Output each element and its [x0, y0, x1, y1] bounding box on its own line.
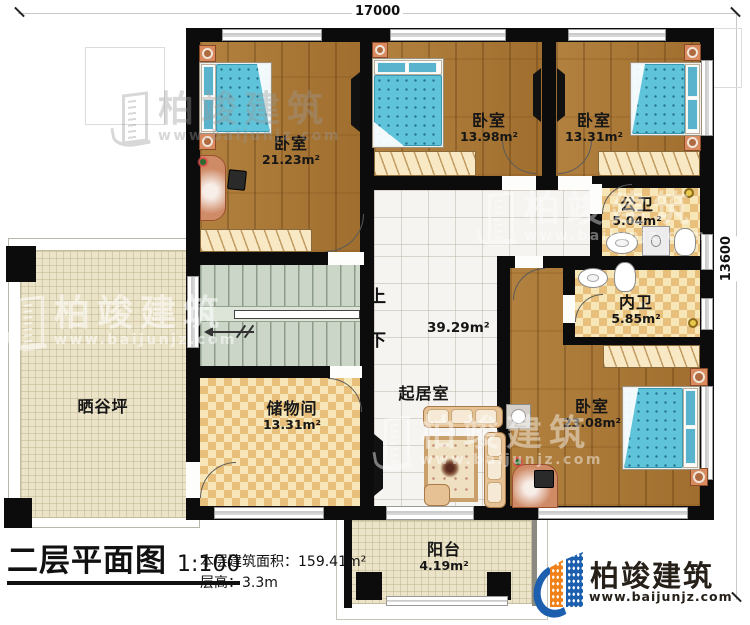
sofa-cushion — [487, 436, 502, 457]
sofa-cushion — [475, 409, 497, 424]
window — [222, 29, 322, 41]
room-name: 公卫 — [612, 196, 661, 214]
tv-icon — [533, 68, 541, 122]
nightstand — [372, 42, 388, 58]
door-opening — [563, 295, 575, 323]
nightstand — [199, 45, 216, 62]
stairs-railing — [234, 310, 360, 319]
sofa-cushion — [427, 409, 449, 424]
room-area: 13.31m² — [263, 418, 321, 432]
wall — [563, 337, 714, 345]
nightstand — [684, 134, 701, 151]
window — [701, 60, 713, 136]
roof-outline-hint — [712, 28, 742, 88]
roof-outline-hint — [85, 47, 165, 125]
logo-orange-tower — [550, 560, 563, 607]
nightstand — [690, 468, 708, 486]
tv-icon — [557, 68, 565, 122]
door-opening — [515, 256, 543, 268]
window — [701, 298, 713, 330]
tv-icon — [351, 72, 360, 132]
bed-pillow — [408, 62, 437, 73]
window — [538, 507, 688, 519]
nightstand — [199, 133, 216, 150]
brand-url: www.baijunjz.com — [589, 589, 733, 604]
hallway-floor — [374, 190, 590, 256]
room-label-bedroom-bottom-right: 卧室 23.08m² — [563, 398, 621, 430]
computer-icon — [534, 470, 554, 488]
plan-title: 二层平面图 — [7, 546, 167, 577]
door-opening — [502, 176, 536, 190]
room-label-storage: 储物间 13.31m² — [263, 400, 321, 432]
floor-height-value: 3.3m — [242, 575, 278, 591]
wardrobe — [374, 151, 476, 176]
plant-icon — [197, 156, 209, 168]
window — [187, 276, 199, 348]
room-name: 内卫 — [611, 294, 660, 312]
column — [6, 246, 36, 282]
room-name: 阳台 — [419, 541, 468, 559]
sink-icon — [606, 232, 638, 254]
plant-icon — [512, 456, 524, 468]
dimension-width-label: 17000 — [352, 4, 403, 19]
table-lamp-icon — [511, 409, 526, 424]
toilet-icon — [614, 262, 636, 292]
room-name: 起居室 — [398, 385, 449, 403]
balcony-railing-window — [386, 596, 508, 606]
room-area: 5.04m² — [612, 214, 661, 228]
room-label-drying-yard: 晒谷坪 — [77, 398, 128, 416]
door-opening — [328, 252, 364, 265]
brand-logo-icon — [537, 551, 587, 609]
bed-pillow — [203, 99, 214, 130]
window — [214, 507, 324, 519]
wall — [563, 256, 714, 270]
floor-plan-canvas: 17000 13600 — [0, 0, 750, 625]
room-name: 晒谷坪 — [77, 398, 128, 416]
room-area: 21.23m² — [262, 153, 320, 167]
sofa-cushion — [451, 409, 473, 424]
drying-yard-floor — [20, 250, 192, 518]
room-area: 23.08m² — [563, 416, 621, 430]
room-label-bedroom-top-middle: 卧室 13.98m² — [460, 112, 518, 144]
dimension-line-right — [736, 13, 737, 600]
floor-area-label: 本层建筑面积： — [200, 554, 298, 570]
tv-icon — [374, 434, 383, 496]
room-name: 储物间 — [263, 400, 321, 418]
bed-pillow — [685, 428, 696, 464]
armchair — [424, 484, 450, 506]
stairs-up-label: 上 — [369, 282, 386, 307]
room-label-balcony: 阳台 4.19m² — [419, 541, 468, 573]
window — [701, 386, 713, 480]
room-label-private-bathroom: 内卫 5.85m² — [611, 294, 660, 326]
living-room-area: 39.29m² — [427, 320, 490, 336]
balcony-sliding-door — [386, 506, 474, 520]
room-label-public-bathroom: 公卫 5.04m² — [612, 196, 661, 228]
wardrobe — [200, 229, 312, 252]
window — [390, 29, 506, 41]
ceiling-lamp-icon — [684, 188, 694, 198]
floor-height-info: 层高：3.3m — [200, 572, 278, 592]
sofa-cushion — [487, 482, 502, 503]
computer-icon — [227, 169, 247, 191]
column — [4, 498, 32, 528]
room-label-bedroom-top-right: 卧室 13.31m² — [565, 112, 623, 144]
wardrobe — [598, 151, 700, 176]
room-area: 5.85m² — [611, 312, 660, 326]
logo-blue-tower — [566, 552, 583, 607]
stairs-down-label: 下 — [369, 326, 386, 351]
sink-icon — [578, 268, 608, 288]
bed-pillow — [377, 62, 406, 73]
toilet-icon — [674, 228, 696, 256]
bed-pillow — [685, 390, 696, 426]
window — [701, 234, 713, 270]
stairs-arrowhead-icon — [204, 327, 213, 337]
room-area: 13.31m² — [565, 130, 623, 144]
floor-area-info: 本层建筑面积：159.41m² — [200, 551, 366, 571]
floor-area-value: 159.41m² — [298, 554, 366, 570]
room-name: 卧室 — [460, 112, 518, 130]
room-area: 4.19m² — [419, 559, 468, 573]
nightstand — [684, 44, 701, 61]
bed-pillow — [687, 66, 698, 97]
door-opening — [558, 176, 592, 190]
door-opening — [590, 184, 602, 214]
bed-pillow — [203, 66, 214, 96]
room-name: 卧室 — [565, 112, 623, 130]
room-area: 13.98m² — [460, 130, 518, 144]
shower-icon — [642, 226, 670, 256]
room-label-bedroom-top-left: 卧室 21.23m² — [262, 135, 320, 167]
floor-height-label: 层高： — [200, 575, 242, 591]
sofa-cushion — [487, 459, 502, 480]
wardrobe — [603, 345, 700, 368]
rug-flower — [440, 458, 460, 478]
room-name: 卧室 — [563, 398, 621, 416]
room-label-living: 起居室 — [398, 385, 449, 403]
window — [568, 29, 666, 41]
dimension-tick — [14, 7, 25, 18]
door-opening — [186, 462, 200, 498]
room-name: 卧室 — [262, 135, 320, 153]
ceiling-lamp-icon — [688, 318, 698, 328]
door-opening — [330, 366, 362, 378]
bed-pillow — [687, 99, 698, 130]
column — [356, 572, 382, 600]
dimension-height-label: 13600 — [716, 236, 737, 281]
nightstand — [690, 368, 708, 386]
